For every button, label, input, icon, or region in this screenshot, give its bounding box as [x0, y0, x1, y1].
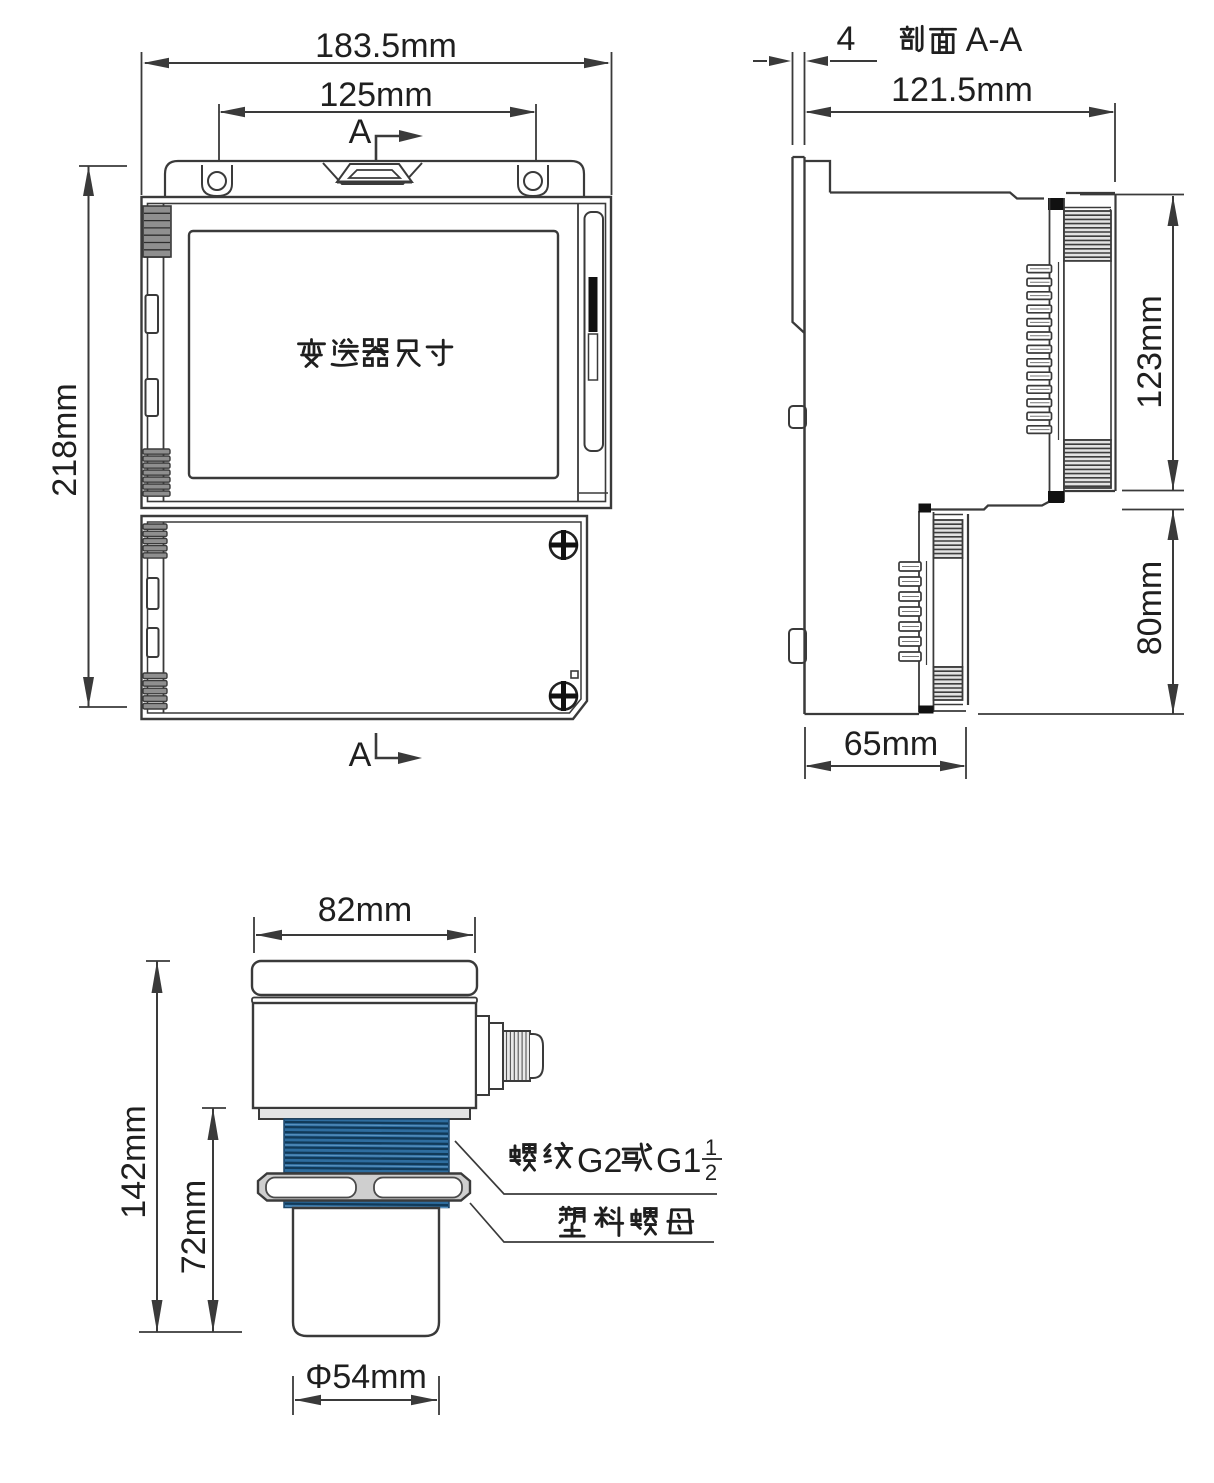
svg-text:125mm: 125mm: [319, 76, 432, 114]
svg-text:A: A: [349, 736, 372, 774]
svg-text:65mm: 65mm: [844, 725, 938, 763]
svg-text:G1: G1: [656, 1142, 701, 1180]
svg-text:183.5mm: 183.5mm: [315, 27, 457, 65]
svg-text:4: 4: [837, 20, 856, 58]
svg-text:Φ54mm: Φ54mm: [305, 1358, 427, 1396]
svg-text:142mm: 142mm: [115, 1105, 153, 1218]
svg-text:1: 1: [705, 1135, 717, 1160]
svg-text:2: 2: [705, 1160, 717, 1185]
svg-text:80mm: 80mm: [1131, 561, 1169, 655]
svg-text:G2: G2: [577, 1142, 622, 1180]
svg-text:A: A: [349, 113, 372, 151]
svg-text:123mm: 123mm: [1131, 295, 1169, 408]
svg-text:121.5mm: 121.5mm: [891, 71, 1033, 109]
svg-text:218mm: 218mm: [46, 383, 84, 496]
svg-text:82mm: 82mm: [318, 891, 412, 929]
svg-text:A-A: A-A: [966, 21, 1023, 59]
svg-text:72mm: 72mm: [175, 1180, 213, 1274]
